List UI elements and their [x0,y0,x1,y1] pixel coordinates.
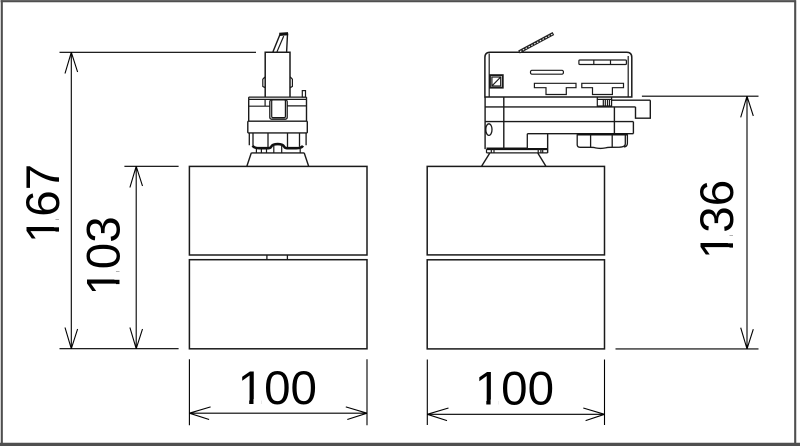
svg-text:103: 103 [78,216,131,295]
svg-text:100: 100 [475,363,554,416]
svg-text:136: 136 [691,180,744,259]
svg-text:167: 167 [17,164,70,243]
svg-text:100: 100 [238,362,317,415]
